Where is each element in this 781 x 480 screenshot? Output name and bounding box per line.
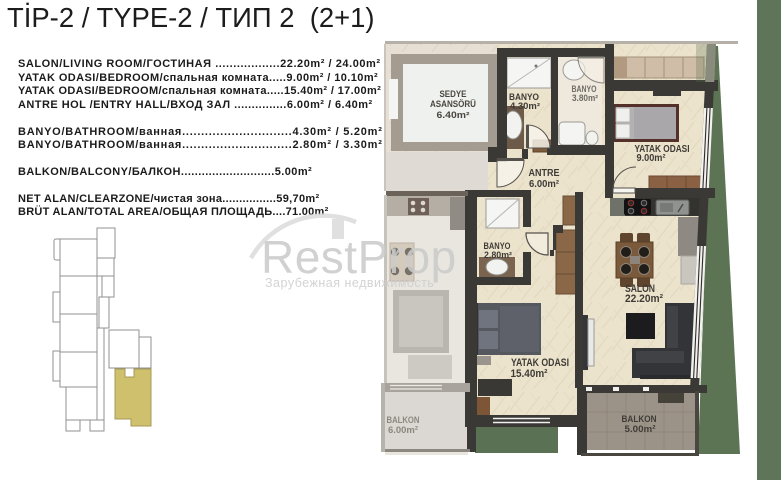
svg-text:3.80m²: 3.80m² — [572, 93, 598, 103]
svg-text:SEDYE: SEDYE — [440, 89, 467, 99]
svg-text:9.00m²: 9.00m² — [637, 152, 666, 164]
svg-text:15.40m²: 15.40m² — [511, 368, 548, 380]
svg-text:ASANSÖRÜ: ASANSÖRÜ — [430, 99, 476, 109]
svg-text:Зарубежная недвижимость: Зарубежная недвижимость — [265, 276, 434, 290]
svg-text:4.30m²: 4.30m² — [510, 101, 540, 111]
svg-text:6.00m²: 6.00m² — [388, 425, 418, 436]
svg-text:6.40m²: 6.40m² — [437, 110, 470, 120]
svg-text:5.00m²: 5.00m² — [625, 424, 656, 435]
svg-text:6.00m²: 6.00m² — [529, 178, 559, 190]
svg-text:22.20m²: 22.20m² — [625, 293, 663, 305]
svg-text:2.80m²: 2.80m² — [484, 250, 512, 260]
